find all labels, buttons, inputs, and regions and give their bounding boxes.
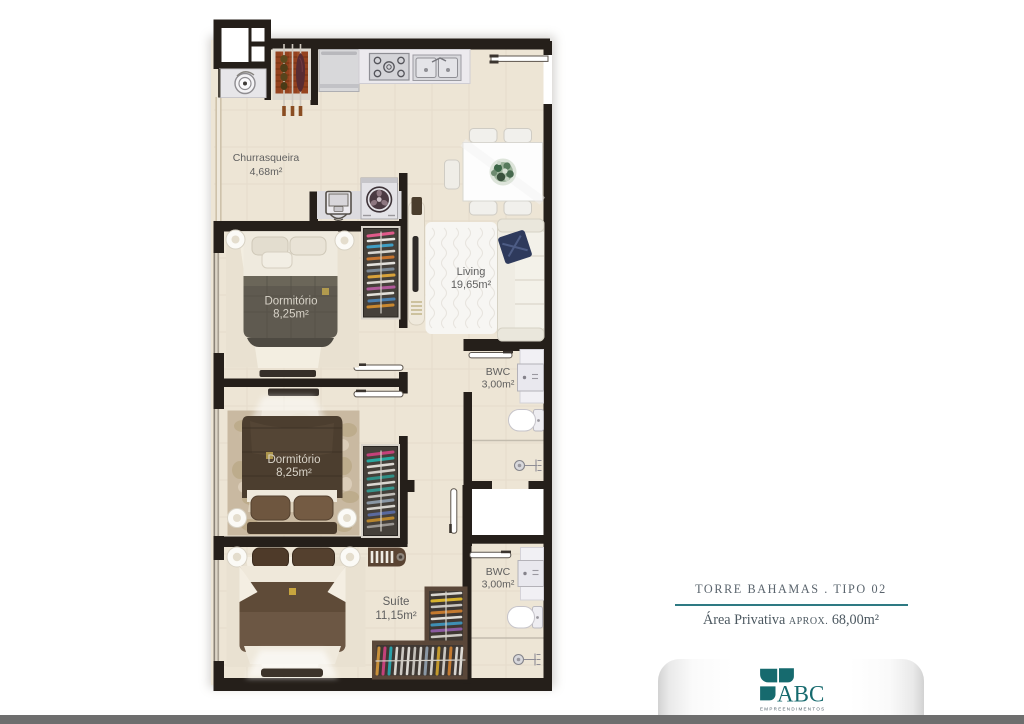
svg-text:8,25m²: 8,25m² — [273, 309, 309, 321]
svg-text:4,68m²: 4,68m² — [250, 166, 283, 178]
svg-text:8,25m²: 8,25m² — [276, 467, 312, 479]
svg-text:BWC: BWC — [486, 366, 511, 378]
svg-text:EMPREENDIMENTOS: EMPREENDIMENTOS — [760, 707, 825, 712]
svg-text:3,00m²: 3,00m² — [482, 579, 515, 591]
svg-text:Churrasqueira: Churrasqueira — [233, 152, 300, 164]
svg-text:Suíte: Suíte — [383, 596, 410, 608]
svg-text:11,15m²: 11,15m² — [375, 610, 417, 622]
svg-text:BWC: BWC — [486, 566, 511, 578]
svg-text:Living: Living — [457, 266, 486, 278]
svg-text:3,00m²: 3,00m² — [482, 379, 515, 391]
svg-text:19,65m²: 19,65m² — [451, 279, 492, 291]
svg-text:Dormitório: Dormitório — [267, 454, 320, 466]
svg-text:Dormitório: Dormitório — [264, 296, 317, 308]
svg-text:ABC: ABC — [777, 682, 824, 707]
